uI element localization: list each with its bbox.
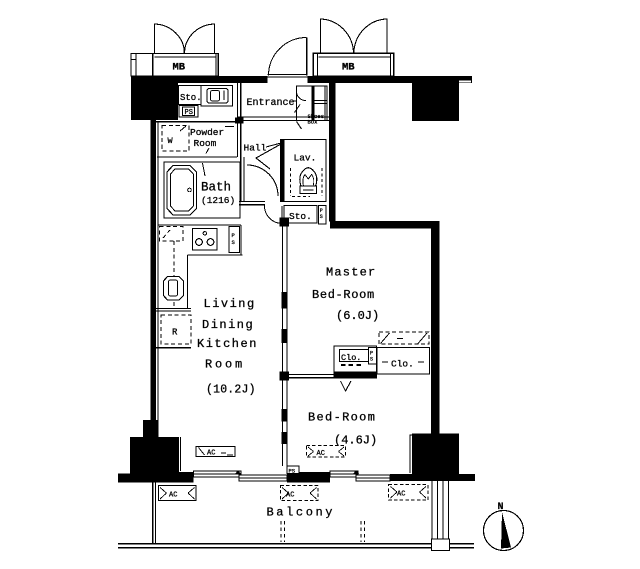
svg-text:Dining: Dining	[202, 318, 254, 332]
svg-text:Bath: Bath	[201, 180, 231, 194]
svg-text:Room: Room	[205, 357, 245, 371]
svg-text:Box: Box	[308, 119, 319, 126]
svg-text:Sto.: Sto.	[180, 93, 202, 103]
svg-text:Master: Master	[326, 266, 376, 280]
svg-text:MB: MB	[342, 61, 355, 73]
svg-text:AC: AC	[207, 450, 215, 458]
svg-text:MB: MB	[173, 61, 186, 73]
svg-text:S: S	[320, 214, 323, 220]
svg-text:Lav.: Lav.	[294, 152, 317, 163]
svg-text:Clo.: Clo.	[391, 359, 414, 370]
svg-text:Balcony: Balcony	[267, 505, 336, 519]
svg-text:Kitchen: Kitchen	[197, 337, 258, 351]
svg-text:Living: Living	[204, 297, 256, 311]
svg-text:(6.0J): (6.0J)	[336, 309, 379, 323]
svg-text:Entrance: Entrance	[247, 98, 295, 109]
svg-text:Room: Room	[194, 138, 217, 149]
svg-text:AC: AC	[169, 492, 177, 500]
svg-text:(10.2J): (10.2J)	[206, 383, 256, 396]
svg-text:Sto.: Sto.	[289, 211, 312, 222]
svg-text:PS: PS	[185, 109, 193, 117]
svg-text:(1216): (1216)	[201, 195, 235, 206]
svg-text:AC: AC	[397, 491, 405, 499]
svg-text:Clo.: Clo.	[341, 353, 361, 363]
svg-text:AC: AC	[317, 450, 325, 458]
svg-text:AC: AC	[286, 492, 294, 500]
svg-text:N: N	[498, 502, 504, 513]
svg-text:W: W	[168, 136, 174, 146]
svg-text:Hall: Hall	[244, 143, 267, 154]
svg-text:S: S	[370, 357, 373, 363]
svg-text:P: P	[232, 232, 235, 239]
svg-text:R: R	[172, 328, 178, 338]
svg-text:Bed-Room: Bed-Room	[308, 410, 376, 424]
svg-text:Bed-Room: Bed-Room	[312, 288, 375, 302]
svg-text:Powder: Powder	[190, 127, 224, 138]
svg-text:PS: PS	[289, 468, 296, 475]
